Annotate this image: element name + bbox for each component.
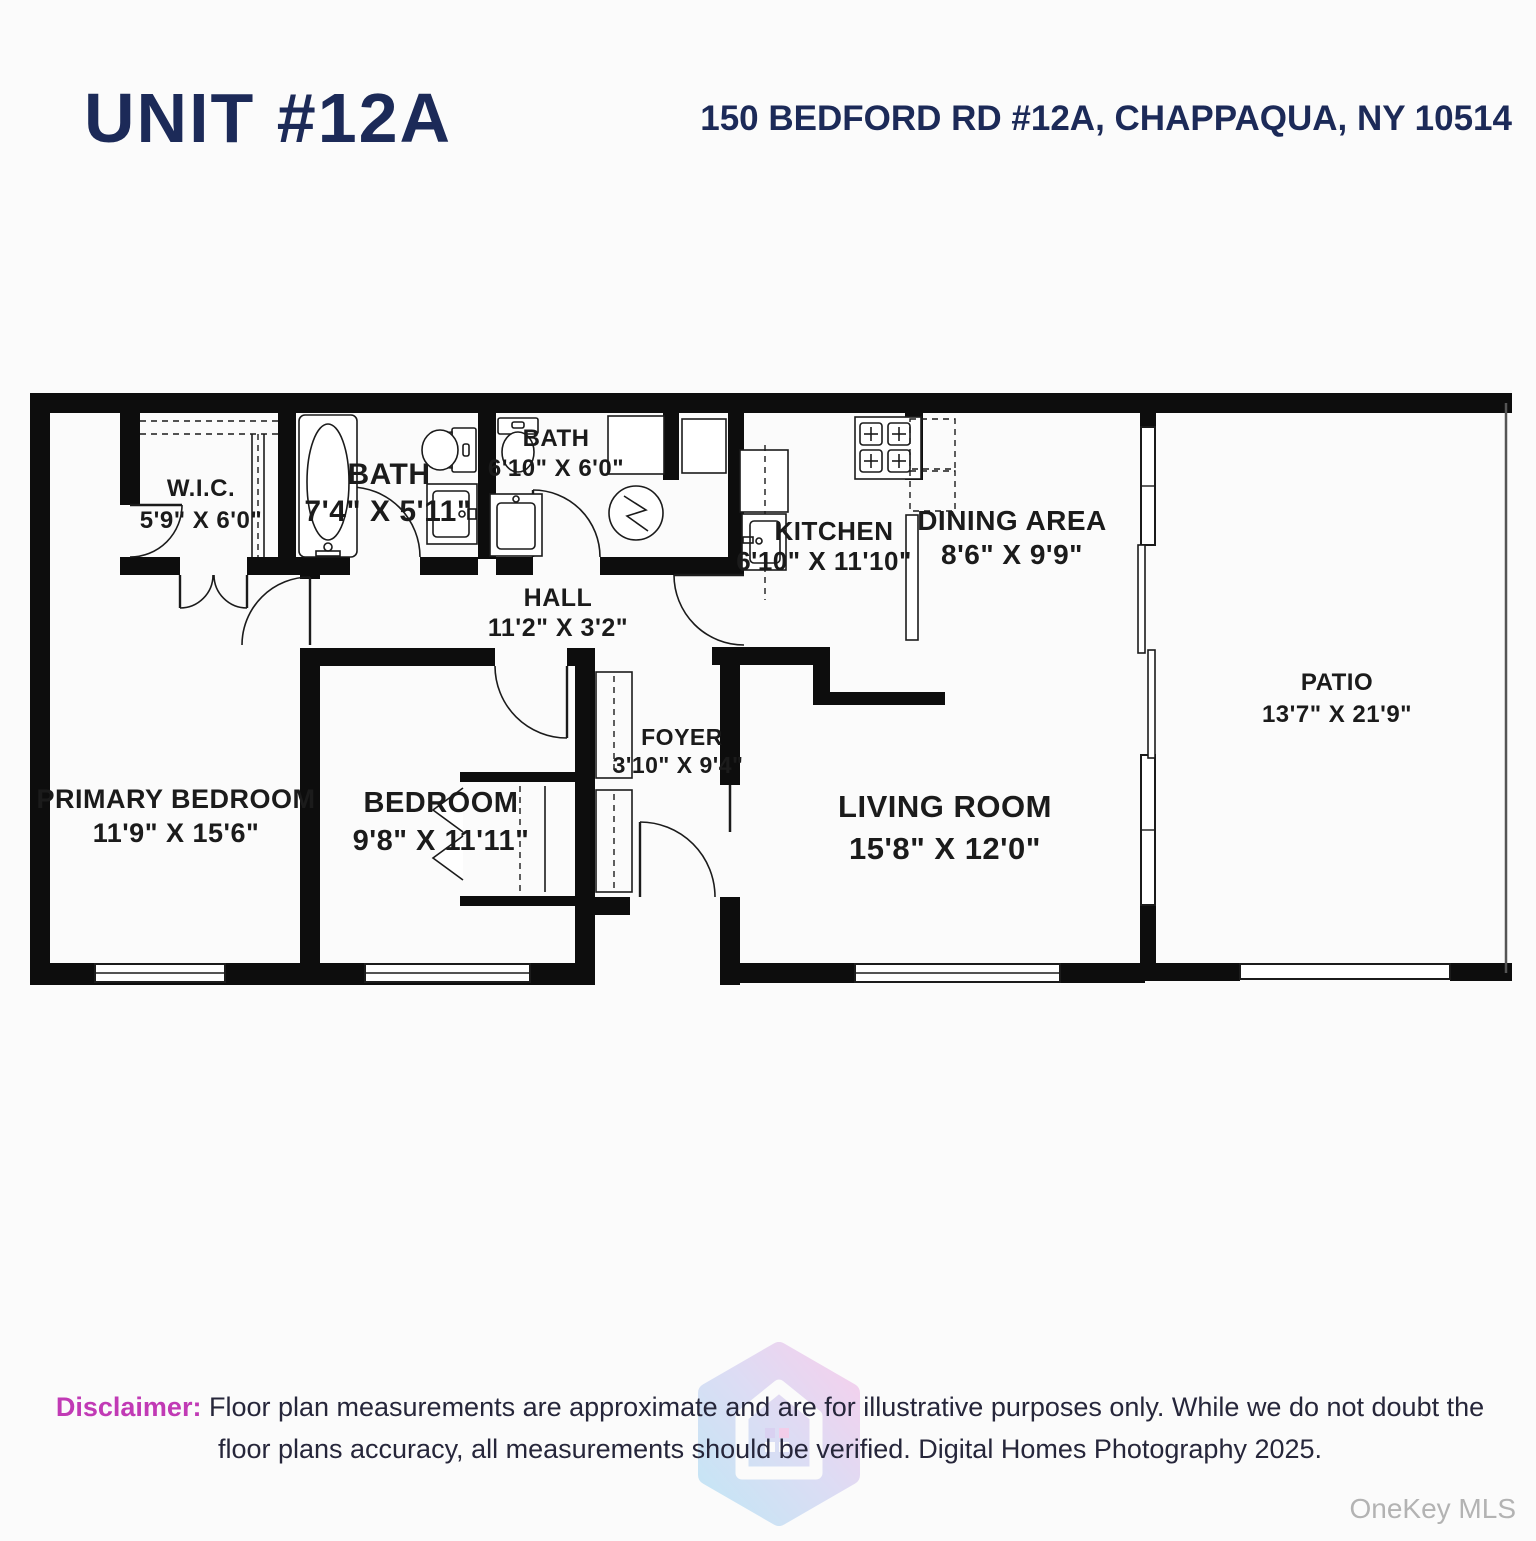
wall-segment [120,413,140,505]
door-swing [674,575,744,645]
entry-door-swing [640,822,715,897]
door-swing [242,577,310,645]
room-label: DINING AREA [917,505,1107,536]
kitchen-peninsula [906,515,918,640]
room-label: W.I.C. [167,475,235,502]
room-dims: 11'2" X 3'2" [488,614,628,642]
wall-segment [300,648,495,666]
room-primary-bedroom: PRIMARY BEDROOM 11'9" X 15'6" [36,784,315,848]
wall-segment [600,557,744,575]
wall-segment [247,557,350,575]
wall-segment [575,648,595,900]
room-label: PRIMARY BEDROOM [36,784,315,814]
room-dims: 11'9" X 15'6" [93,818,260,848]
room-dims: 7'4" X 5'11" [304,495,471,528]
wall-segment [30,393,1512,413]
sliding-door [1138,545,1155,758]
patio-railing [1240,964,1450,979]
utility-shelf [682,419,726,473]
room-dims: 15'8" X 12'0" [849,831,1041,866]
wall-segment [1145,963,1240,981]
wall-segment [300,648,320,985]
room-dining: DINING AREA 8'6" X 9'9" [917,505,1107,570]
bathroom-sink-icon [490,494,542,556]
room-dims: 8'6" X 9'9" [941,539,1083,570]
room-dims: 3'10" X 9'4" [613,752,744,778]
disclaimer-label: Disclaimer: [56,1392,202,1422]
room-dims: 5'9" X 6'0" [140,507,262,534]
room-dims: 6'10" X 6'0" [488,455,624,482]
wall-segment [120,557,180,575]
room-label: HALL [524,584,593,612]
fixtures [140,415,955,892]
wall-segment [663,413,679,480]
wall-segment [300,557,320,579]
room-label: BEDROOM [364,787,519,819]
water-heater-icon [609,486,663,540]
page-title: UNIT #12A [84,79,452,157]
wall-segment [830,692,945,705]
wall-segment [460,772,575,782]
room-label: BATH [347,458,430,491]
room-label: LIVING ROOM [838,789,1052,824]
room-label: PATIO [1301,669,1373,696]
wall-segment [712,647,813,665]
floor-plan-page: UNIT #12A 150 BEDFORD RD #12A, CHAPPAQUA… [0,0,1536,1536]
room-labels: W.I.C. 5'9" X 6'0" BATH 7'4" X 5'11" BAT… [36,425,1412,866]
room-label: KITCHEN [774,516,893,546]
disclaimer-text: Floor plan measurements are approximate … [201,1392,1484,1422]
door-swing [495,666,567,738]
wall-segment [496,557,533,575]
wall-segment [278,413,296,559]
window [1141,427,1155,545]
wall-segment [420,557,478,575]
room-dims: 9'8" X 11'11" [353,825,530,857]
window [95,964,225,982]
window [855,964,1060,982]
wall-segment [1140,905,1156,965]
disclaimer-line-2: floor plans accuracy, all measurements s… [218,1434,1322,1464]
wall-segment [1450,963,1512,981]
wall-segment [1140,413,1156,427]
window [1141,755,1155,905]
address: 150 BEDFORD RD #12A, CHAPPAQUA, NY 10514 [700,99,1512,138]
room-patio: PATIO 13'7" X 21'9" [1262,669,1412,728]
stove-icon [855,417,921,479]
wall-segment [813,647,830,705]
wall-segment [30,393,50,985]
door-swing [533,490,600,557]
room-dims: 6'10" X 11'10" [736,546,912,576]
mls-watermark: OneKey MLS [1349,1493,1516,1524]
wall-segment [720,897,740,985]
wall-segment [460,896,575,906]
room-dims: 13'7" X 21'9" [1262,701,1412,728]
double-door-swing [180,575,247,608]
room-hall: HALL 11'2" X 3'2" [488,584,628,642]
foyer-closet [596,672,632,892]
room-living: LIVING ROOM 15'8" X 12'0" [838,789,1052,866]
room-label: BATH [523,425,590,452]
room-bedroom: BEDROOM 9'8" X 11'11" [353,787,530,857]
window [365,964,530,982]
room-label: FOYER [641,724,723,750]
disclaimer-line-1: Disclaimer: Floor plan measurements are … [56,1392,1484,1422]
